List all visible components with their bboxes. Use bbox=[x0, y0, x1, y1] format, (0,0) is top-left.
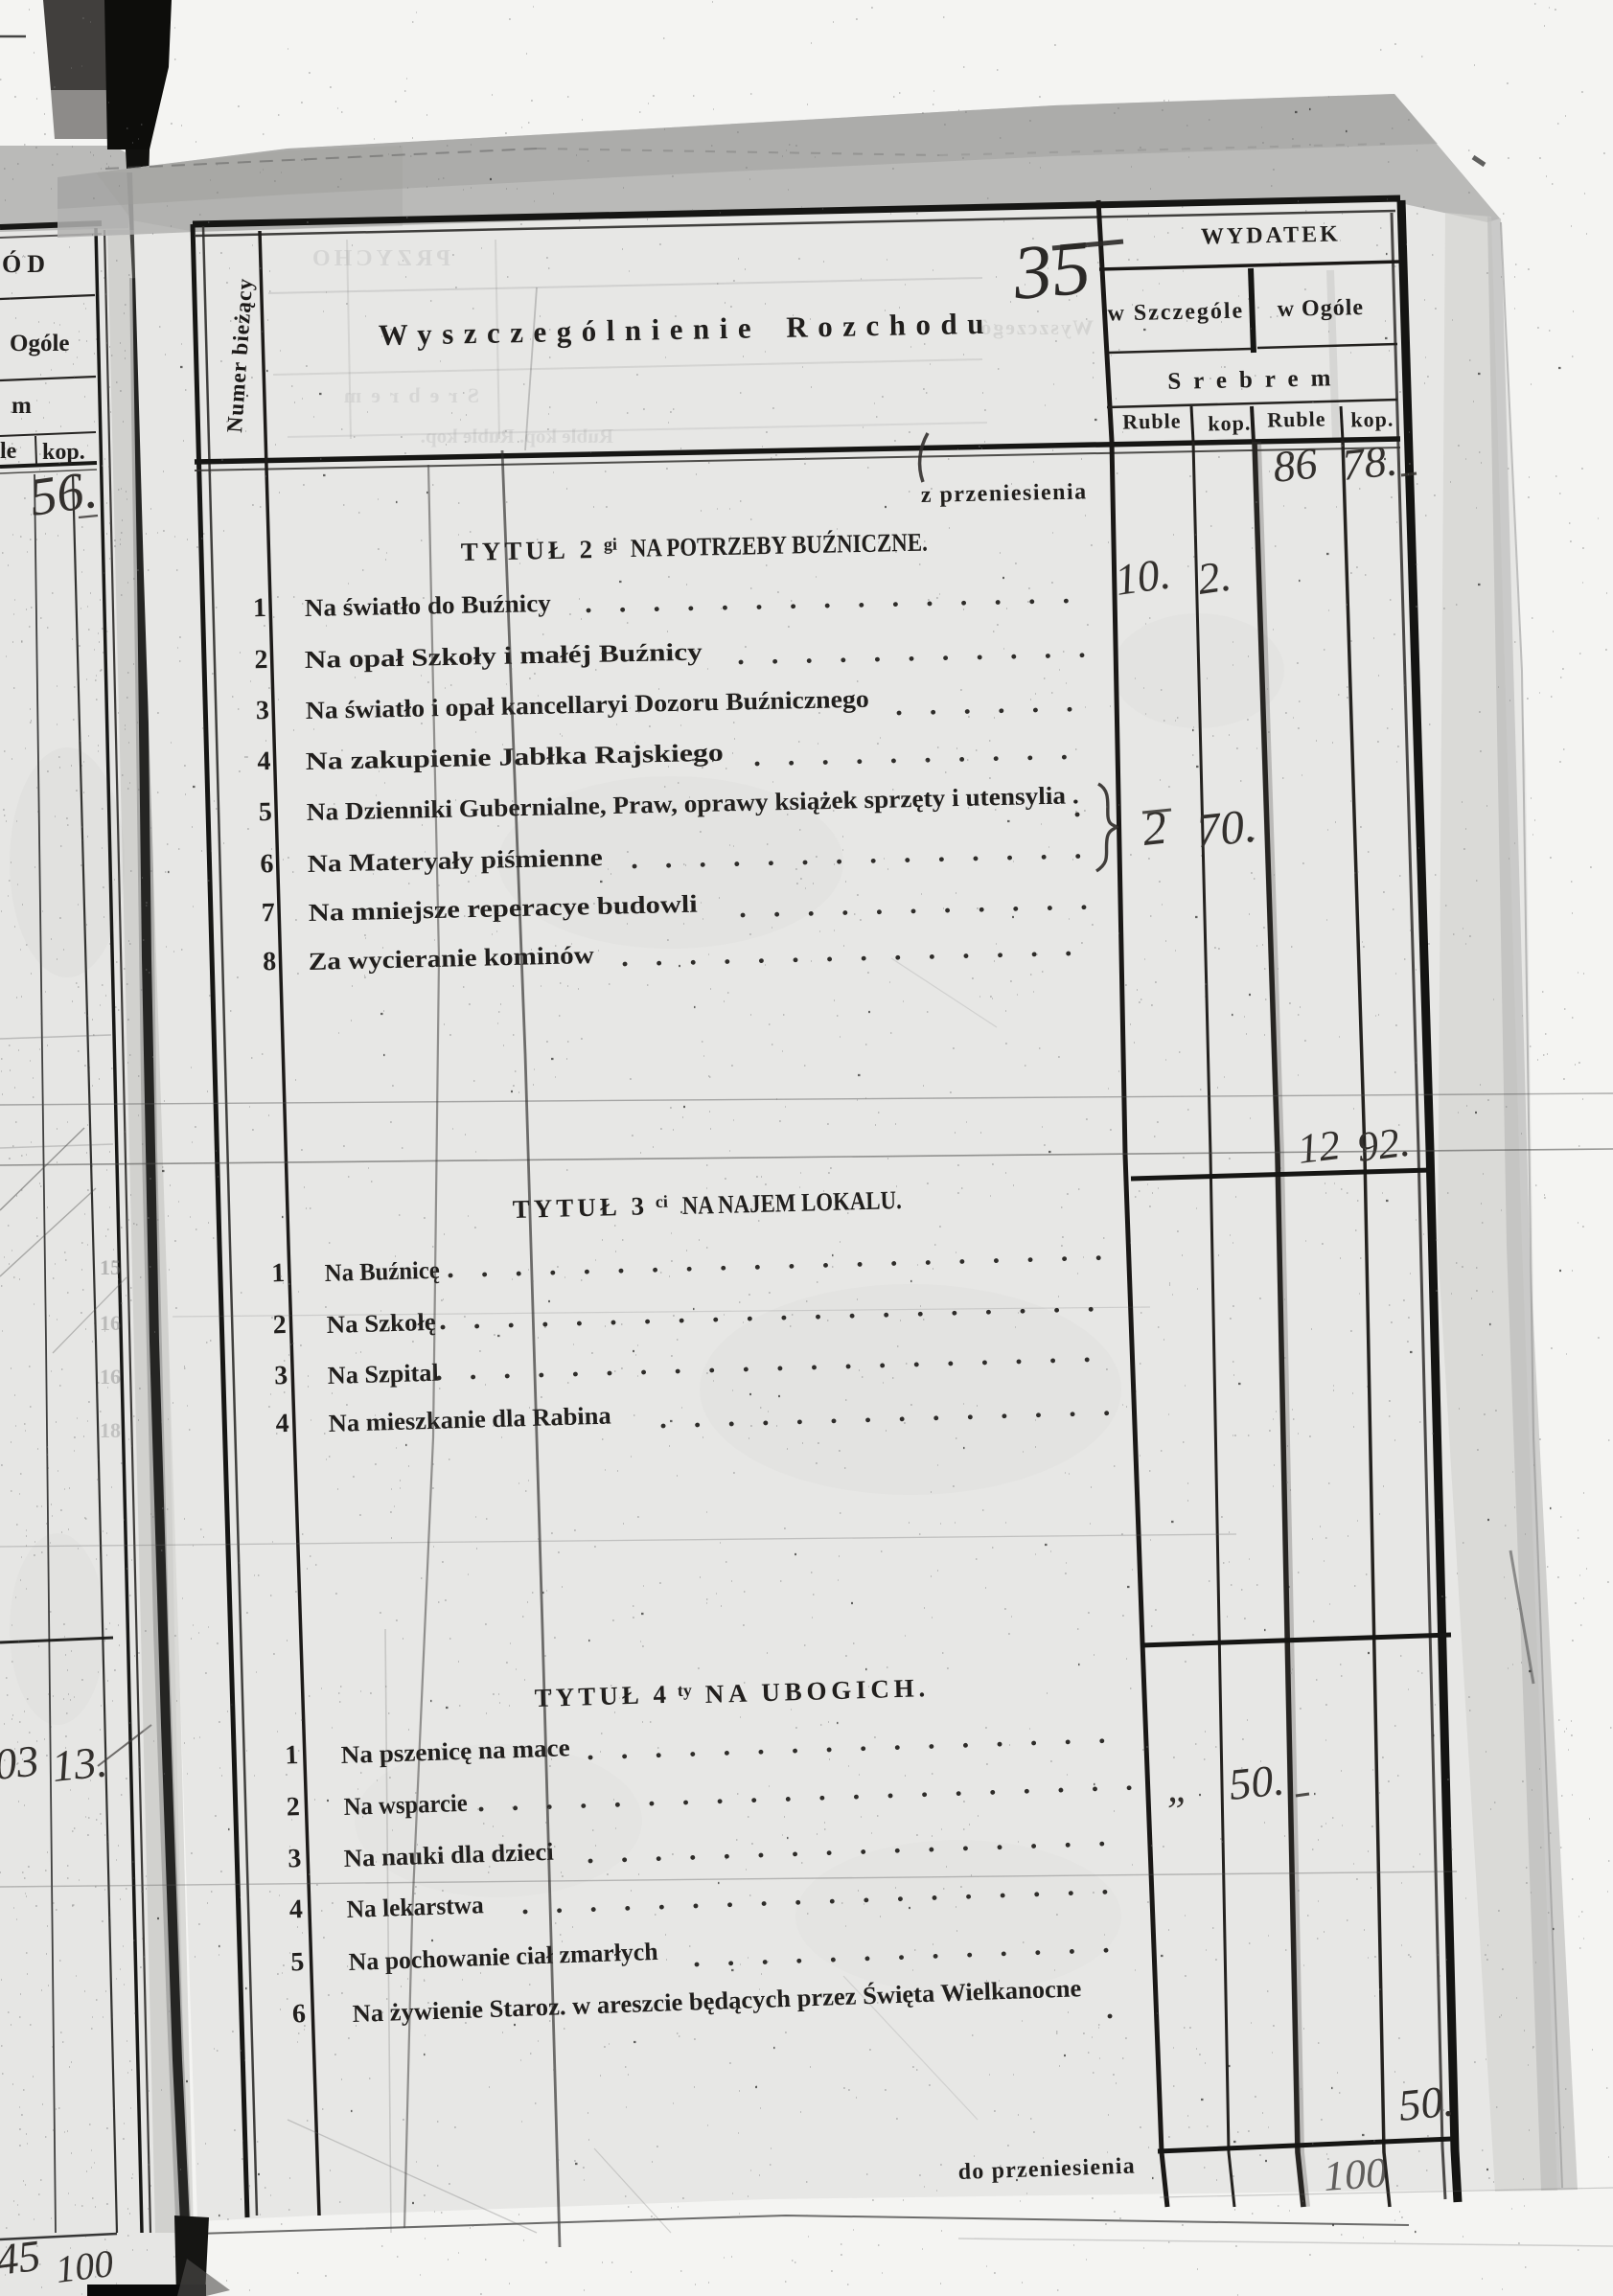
svg-text:Na Szkołę: Na Szkołę bbox=[326, 1308, 436, 1339]
svg-text:3: 3 bbox=[256, 696, 270, 725]
svg-text:Na lekarstwa: Na lekarstwa bbox=[346, 1891, 484, 1923]
svg-text:m: m bbox=[12, 393, 32, 419]
svg-text:5: 5 bbox=[290, 1947, 305, 1977]
svg-text:10.: 10. bbox=[1112, 548, 1173, 605]
svg-text:Ruble: Ruble bbox=[1267, 406, 1326, 431]
svg-text:3: 3 bbox=[288, 1844, 302, 1873]
svg-text:100: 100 bbox=[54, 2241, 116, 2291]
svg-text:2: 2 bbox=[272, 1310, 287, 1340]
svg-text:3: 3 bbox=[274, 1361, 288, 1390]
svg-text:ty: ty bbox=[678, 1681, 693, 1700]
svg-text:Srebrem: Srebrem bbox=[1167, 365, 1344, 395]
svg-text:86: 86 bbox=[1271, 438, 1320, 492]
svg-text:NA NAJEM LOKALU.: NA NAJEM LOKALU. bbox=[681, 1185, 902, 1220]
svg-text:Wyszczegó: Wyszczegó bbox=[979, 315, 1094, 339]
svg-text:6: 6 bbox=[291, 1999, 306, 2029]
svg-text:8: 8 bbox=[263, 947, 277, 976]
svg-text:4: 4 bbox=[288, 1894, 303, 1924]
svg-text:TYTUŁ 3: TYTUŁ 3 bbox=[512, 1191, 648, 1224]
svg-text:35: 35 bbox=[1009, 225, 1094, 316]
svg-text:TYTUŁ 4: TYTUŁ 4 bbox=[534, 1680, 670, 1712]
svg-text:le: le bbox=[0, 439, 17, 464]
svg-text:15: 15 bbox=[100, 1255, 121, 1279]
svg-text:56.: 56. bbox=[26, 460, 101, 528]
svg-text:50.: 50. bbox=[1396, 2076, 1457, 2130]
svg-text:PRZYCHO: PRZYCHO bbox=[309, 246, 450, 271]
svg-text:1: 1 bbox=[285, 1740, 299, 1770]
svg-text:WYDATEK: WYDATEK bbox=[1201, 221, 1341, 249]
svg-text:w Szczególe: w Szczególe bbox=[1107, 299, 1244, 327]
svg-text:78.: 78. bbox=[1340, 435, 1400, 490]
svg-text:70.: 70. bbox=[1193, 798, 1258, 858]
svg-text:4: 4 bbox=[275, 1409, 289, 1438]
svg-text:„: „ bbox=[1167, 1767, 1189, 1811]
svg-text:03: 03 bbox=[0, 1735, 41, 1789]
svg-text:2.: 2. bbox=[1194, 551, 1233, 604]
svg-text:kop.: kop. bbox=[1208, 411, 1251, 436]
svg-text:45: 45 bbox=[0, 2231, 43, 2285]
svg-text:4: 4 bbox=[257, 746, 271, 776]
svg-text:7: 7 bbox=[261, 898, 275, 928]
svg-text:kop.: kop. bbox=[1350, 407, 1394, 432]
svg-text:gi: gi bbox=[604, 535, 617, 554]
svg-text:5: 5 bbox=[258, 797, 272, 827]
svg-text:1: 1 bbox=[253, 593, 267, 623]
svg-text:Na Szpital: Na Szpital bbox=[327, 1359, 439, 1389]
svg-text:z przeniesienia: z przeniesienia bbox=[921, 479, 1088, 508]
svg-text:12: 12 bbox=[1295, 1121, 1343, 1173]
svg-text:18: 18 bbox=[100, 1418, 121, 1442]
svg-text:Na Buźnicę: Na Buźnicę bbox=[324, 1256, 440, 1287]
svg-text:2: 2 bbox=[254, 645, 268, 675]
svg-text:Na światło do Buźnicy: Na światło do Buźnicy bbox=[305, 589, 552, 622]
svg-text:Ruble kop. Ruble kop.: Ruble kop. Ruble kop. bbox=[421, 425, 613, 448]
svg-text:ci: ci bbox=[656, 1192, 669, 1211]
svg-text:92.: 92. bbox=[1354, 1118, 1413, 1171]
svg-text:w Ogóle: w Ogóle bbox=[1277, 295, 1364, 322]
svg-text:Srebrem: Srebrem bbox=[334, 383, 479, 407]
svg-text:16: 16 bbox=[100, 1365, 121, 1389]
svg-text:Ogóle: Ogóle bbox=[10, 331, 70, 356]
svg-text:ÓD: ÓD bbox=[2, 250, 51, 278]
svg-text:50.: 50. bbox=[1227, 1755, 1287, 1809]
svg-text:Ruble: Ruble bbox=[1122, 408, 1182, 433]
svg-text:6: 6 bbox=[260, 849, 274, 879]
svg-text:16: 16 bbox=[100, 1311, 121, 1335]
svg-text:2: 2 bbox=[286, 1792, 300, 1822]
